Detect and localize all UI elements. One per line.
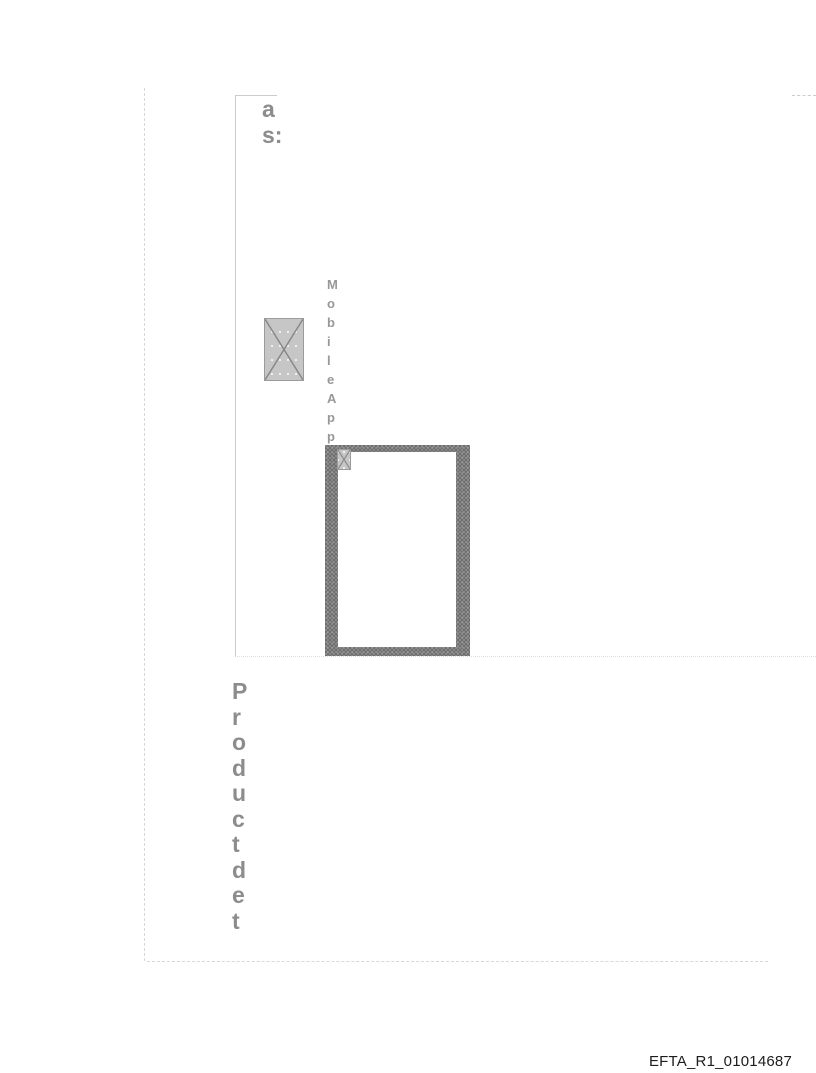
content-border-top-right-segment — [792, 95, 816, 96]
page-canvas: as: Mobile App Product det EFTA_R1_01014… — [0, 0, 816, 1073]
section-heading-product-details: Product det — [232, 679, 234, 934]
footer-document-code: EFTA_R1_01014687 — [649, 1053, 792, 1070]
section-divider-dotted-line — [235, 656, 816, 657]
broken-image-icon-small — [337, 449, 351, 470]
broken-image-icon — [264, 318, 304, 381]
content-border-left-line — [235, 95, 236, 657]
image-alt-text-mobile-app: Mobile App — [327, 275, 329, 446]
truncated-label-as: as: — [262, 96, 264, 148]
page-boundary-left-line — [144, 88, 145, 961]
product-image-area — [338, 452, 456, 647]
page-boundary-bottom-line — [147, 961, 768, 962]
product-image-frame — [325, 445, 470, 656]
